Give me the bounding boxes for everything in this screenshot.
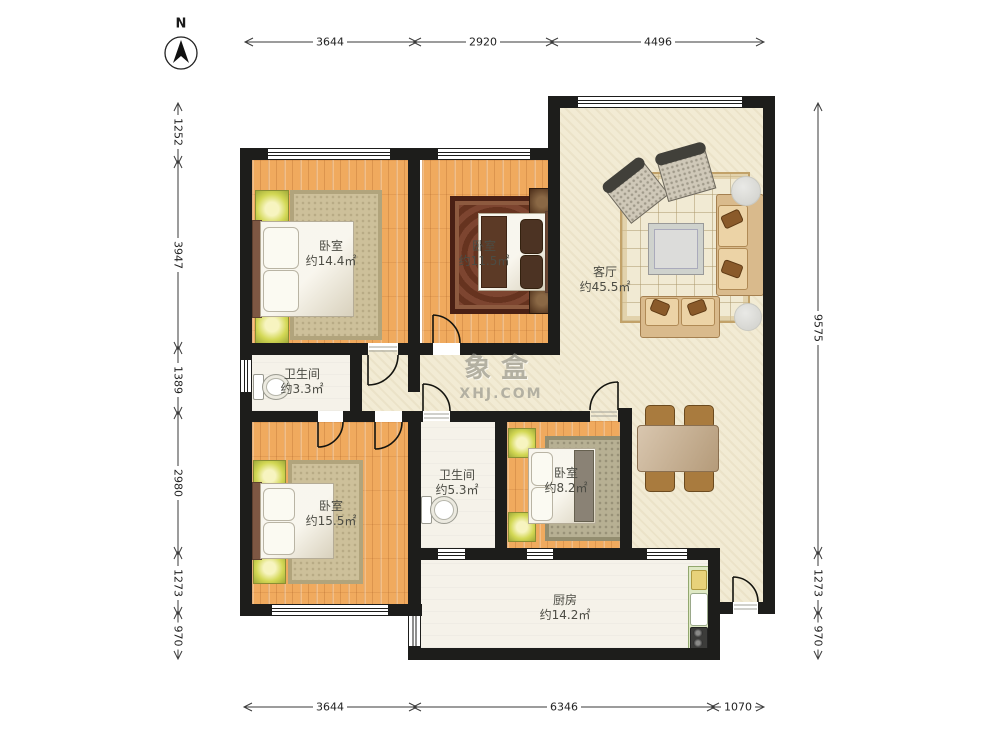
dimension-label: 970 [172, 623, 185, 650]
wall [708, 548, 720, 660]
dimension-label: 1273 [172, 566, 185, 600]
pillow-icon [263, 522, 295, 555]
pillow-icon [520, 255, 543, 289]
room-area: 约14.2㎡ [540, 608, 591, 623]
coffee-table-icon [648, 223, 704, 275]
room-area: 约5.3㎡ [435, 483, 478, 498]
burner-icon [693, 629, 703, 637]
wall [763, 96, 775, 614]
window-icon [438, 148, 530, 160]
wall [450, 411, 590, 422]
room-name: 卧室 [459, 239, 510, 254]
room-name: 卫生间 [435, 468, 478, 483]
pillow-icon [263, 488, 295, 521]
wall [620, 408, 632, 548]
wall [408, 648, 720, 660]
dimension-label: 1273 [812, 566, 825, 600]
room-name: 卧室 [544, 466, 587, 481]
room-area: 约14.4㎡ [306, 254, 357, 269]
dimension-label: 1252 [172, 115, 185, 149]
window-icon [527, 548, 553, 560]
dimension-label: 1389 [172, 363, 185, 397]
burner-icon [693, 639, 703, 647]
window-icon [578, 96, 742, 108]
dimension-label: 4496 [641, 36, 675, 49]
floor-plan: 卧室 约14.4㎡ 卧室 约11.5㎡ 客厅 约45.5㎡ 卫生间 约3.3㎡ … [0, 0, 1000, 750]
side-table-icon [731, 176, 761, 206]
window-icon [272, 604, 388, 616]
pillow-icon [263, 270, 299, 312]
room-label-living: 客厅 约45.5㎡ [580, 265, 631, 295]
wall [548, 96, 560, 355]
watermark: 象盒 XHJ.COM [459, 346, 542, 402]
wall [408, 148, 420, 392]
room-name: 卫生间 [280, 367, 323, 382]
room-area: 约15.5㎡ [306, 514, 357, 529]
window-icon [438, 548, 465, 560]
dimension-label: 3947 [172, 238, 185, 272]
room-label-bedroom-bl: 卧室 约15.5㎡ [306, 499, 357, 529]
room-area: 约3.3㎡ [280, 382, 323, 397]
room-label-bedroom-tl: 卧室 约14.4㎡ [306, 239, 357, 269]
north-arrow-icon [165, 37, 197, 69]
window-icon [268, 148, 390, 160]
pillow-icon [520, 219, 543, 254]
dimension-label: 3644 [313, 36, 347, 49]
dining-table-icon [637, 425, 719, 472]
cutting-board-icon [691, 570, 707, 590]
window-icon [647, 548, 687, 560]
room-area: 约11.5㎡ [459, 254, 510, 269]
room-label-bedroom-bm: 卧室 约8.2㎡ [544, 466, 587, 496]
dimension-label: 1070 [721, 701, 755, 714]
dimension-label: 2920 [466, 36, 500, 49]
side-table-icon [734, 303, 762, 331]
sink-icon [690, 593, 708, 626]
room-name: 厨房 [540, 593, 591, 608]
wall [350, 343, 362, 422]
window-icon [408, 616, 421, 646]
dimension-label: 9575 [812, 311, 825, 345]
north-label: N [176, 17, 187, 32]
room-name: 卧室 [306, 239, 357, 254]
dimension-label: 3644 [313, 701, 347, 714]
room-label-bedroom-tm: 卧室 约11.5㎡ [459, 239, 510, 269]
room-label-kitchen: 厨房 约14.2㎡ [540, 593, 591, 623]
pillow-icon [263, 227, 299, 269]
watermark-brand: 象盒 [459, 346, 542, 385]
window-icon [240, 360, 252, 392]
room-name: 客厅 [580, 265, 631, 280]
room-area: 约8.2㎡ [544, 481, 587, 496]
dimension-label: 6346 [547, 701, 581, 714]
room-label-bath-mid: 卫生间 约5.3㎡ [435, 468, 478, 498]
room-name: 卧室 [306, 499, 357, 514]
dimension-label: 970 [812, 623, 825, 650]
wall [240, 343, 368, 355]
toilet-icon [430, 496, 458, 524]
room-label-bath-top: 卫生间 约3.3㎡ [280, 367, 323, 397]
room-area: 约45.5㎡ [580, 280, 631, 295]
dimension-label: 2980 [172, 466, 185, 500]
wall [495, 421, 507, 548]
watermark-site: XHJ.COM [459, 386, 542, 402]
